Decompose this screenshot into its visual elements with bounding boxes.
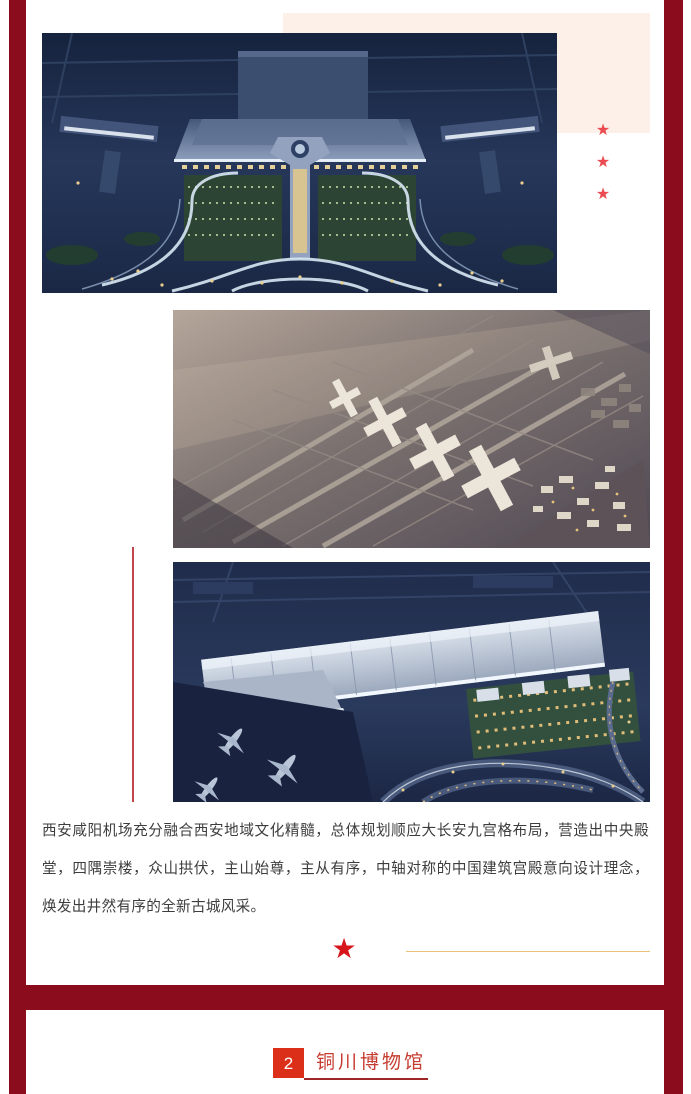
decor-gold-line [406,951,650,952]
airport-masterplan-graphic [173,310,650,548]
decor-vertical-line [132,547,134,802]
airport-terminal-dusk-render-image[interactable] [173,562,650,802]
airport-night-render-graphic [42,33,557,293]
article-paragraph: 西安咸阳机场充分融合西安地域文化精髓，总体规划顺应大长安九宫格布局，营造出中央殿… [42,812,649,926]
airport-terminal-render-graphic [173,562,650,802]
airport-masterplan-dusk-aerial-image[interactable] [173,310,650,548]
section-title-underline [304,1078,428,1080]
section-number-badge: 2 [273,1048,304,1078]
star-divider-icon: ★ [329,934,359,964]
star-icon: ★ [594,122,612,140]
star-icon: ★ [594,186,612,204]
airport-terminal-night-aerial-image[interactable] [42,33,557,293]
star-icon: ★ [594,154,612,172]
section-title: 铜川博物馆 [316,1048,426,1078]
